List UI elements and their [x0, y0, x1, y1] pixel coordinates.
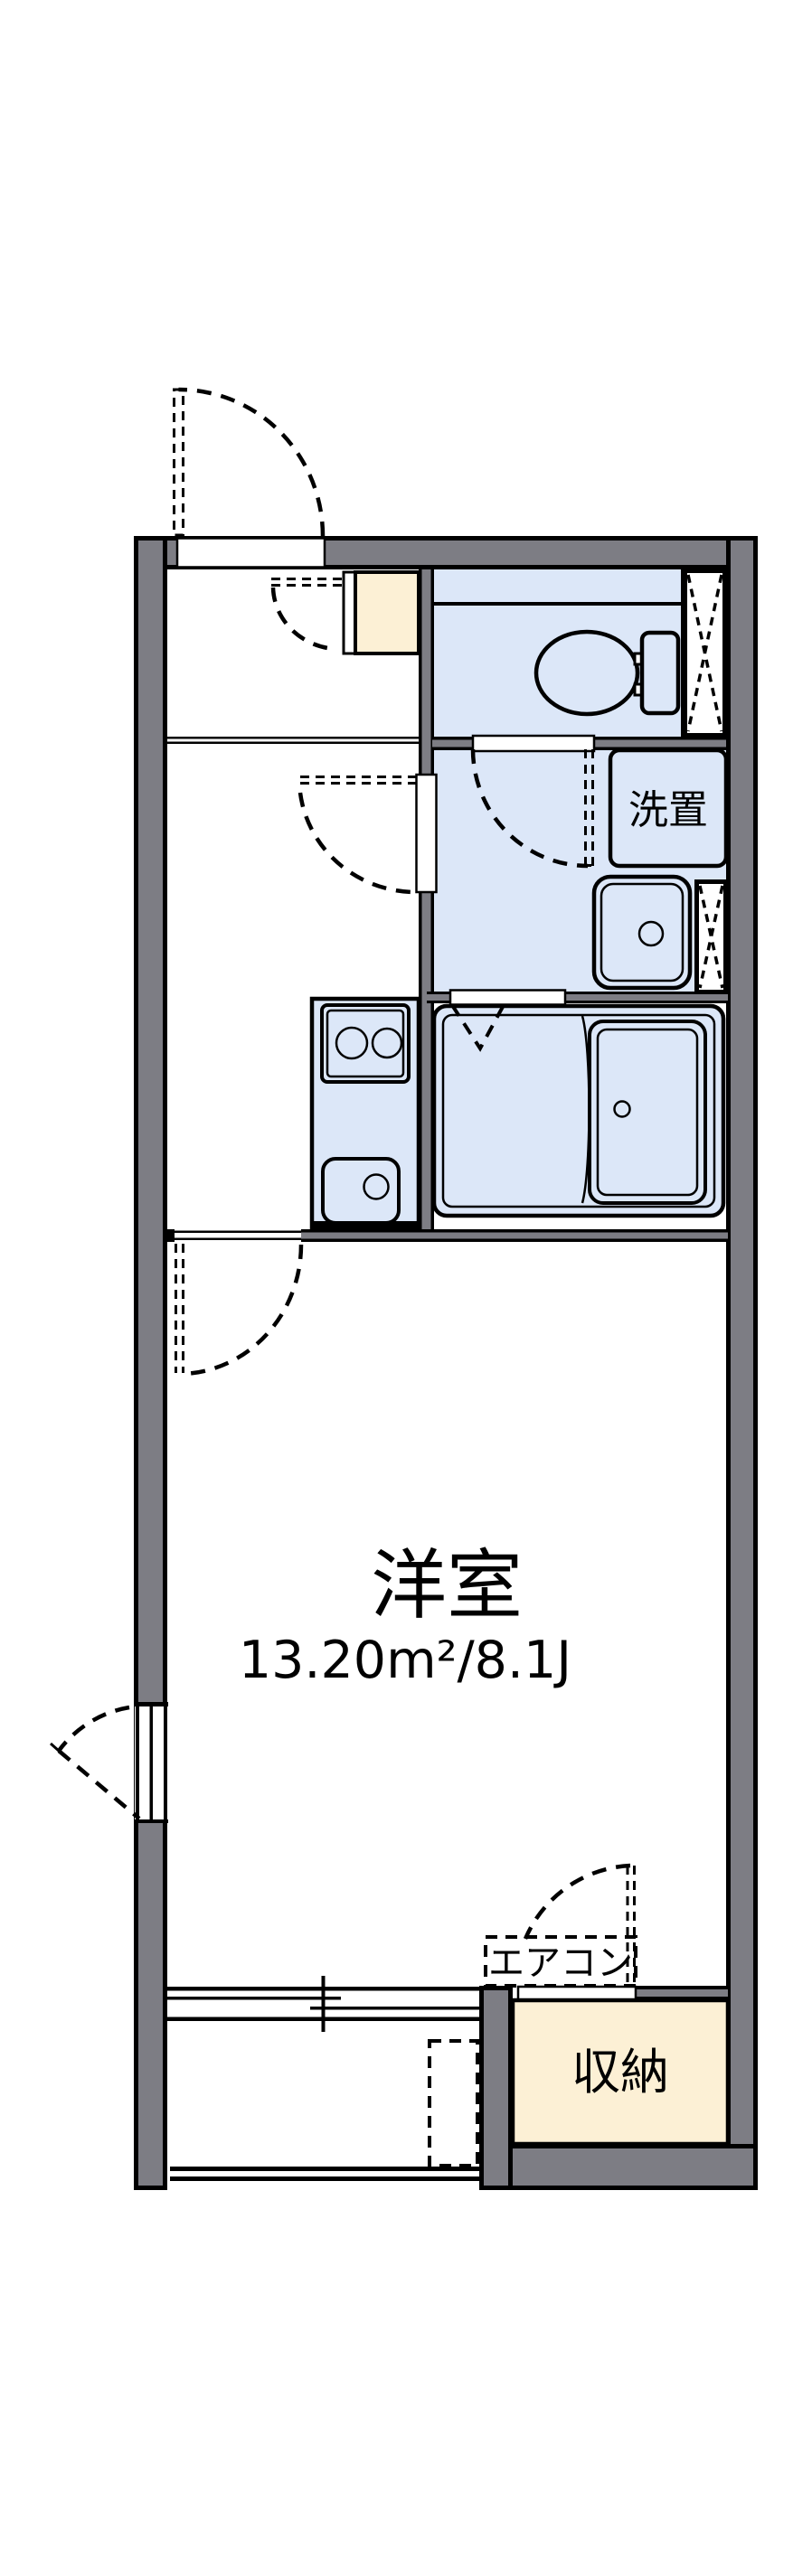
entrance-door-leaf: [175, 390, 184, 535]
entrance-opening: [177, 539, 325, 568]
genkan-door-arc: [273, 588, 335, 649]
room-name-label: 洋室: [371, 1541, 523, 1630]
room-door-leaf: [176, 1244, 184, 1373]
left-window-frame-mid: [150, 1706, 154, 1821]
balcony-equipment-box: [430, 2041, 477, 2166]
right-wall: [731, 541, 753, 2186]
closet-top-wall: [636, 1989, 728, 1997]
balcony: [170, 2041, 479, 2181]
washroom-door-arc: [300, 793, 417, 892]
western-room: 洋室 13.20m²/8.1J: [176, 1244, 572, 1690]
closet-area: 収納 エアコン: [486, 1866, 728, 2144]
sliding-window-center-tick: [322, 1976, 326, 2032]
entrance-door-arc: [179, 390, 324, 536]
genkan-door-leaf: [271, 579, 344, 586]
toilet-tank: [642, 633, 678, 713]
aircon-label: エアコン: [488, 1942, 633, 1984]
left-window-frame-outer: [136, 1706, 139, 1821]
floorplan-drawing: 洗置 洋室 13.20m²/8.1J 収納: [0, 0, 812, 2576]
storage-label: 収納: [571, 2044, 669, 2101]
shoe-cabinet: [355, 572, 419, 653]
wash-basin: [594, 877, 690, 988]
left-wall: [138, 541, 163, 2186]
left-window-swing-arc: [59, 1707, 129, 1751]
washroom-door-leaf: [300, 777, 417, 784]
left-window: [51, 1702, 169, 1823]
entry-step-line-bottom: [167, 742, 419, 745]
washer-space-label: 洗置: [628, 787, 708, 833]
hall-wet-divider: [422, 569, 431, 1232]
bathroom: [434, 1005, 723, 1216]
entrance-door: [175, 390, 324, 536]
left-window-swing-line: [59, 1751, 139, 1819]
sliding-window-sash-left: [165, 1997, 341, 2000]
sliding-window: [165, 1976, 479, 2032]
balcony-rail-outer: [170, 2167, 479, 2171]
toilet-bowl: [536, 632, 637, 714]
bath-unit: [434, 1006, 723, 1216]
genkan: [271, 572, 419, 653]
sliding-window-sash-right: [310, 2007, 479, 2010]
balcony-rail-inner: [170, 2176, 479, 2181]
washroom-door-opening: [417, 775, 437, 892]
room-opening-line-bottom: [172, 1238, 301, 1241]
room-area-label: 13.20m²/8.1J: [239, 1631, 571, 1690]
room-top-wall: [301, 1233, 728, 1239]
left-window-frame-inner: [164, 1706, 167, 1821]
bottom-wall: [484, 2148, 753, 2186]
floorplan-page: 洗置 洋室 13.20m²/8.1J 収納: [0, 0, 812, 2576]
room-opening-line-top: [172, 1231, 301, 1234]
entry-step-line-top: [167, 737, 419, 739]
toilet-door-opening: [473, 736, 594, 751]
left-window-cap-top: [135, 1702, 168, 1706]
room-door-arc: [184, 1245, 301, 1374]
kitchen-counter-front-edge: [312, 1221, 419, 1227]
bathroom-door-opening: [450, 991, 565, 1005]
closet-door-arc: [525, 1866, 630, 1939]
toilet-shelf-line: [432, 602, 681, 606]
kitchen: [312, 999, 419, 1227]
balcony-divider-wall: [484, 1990, 508, 2186]
